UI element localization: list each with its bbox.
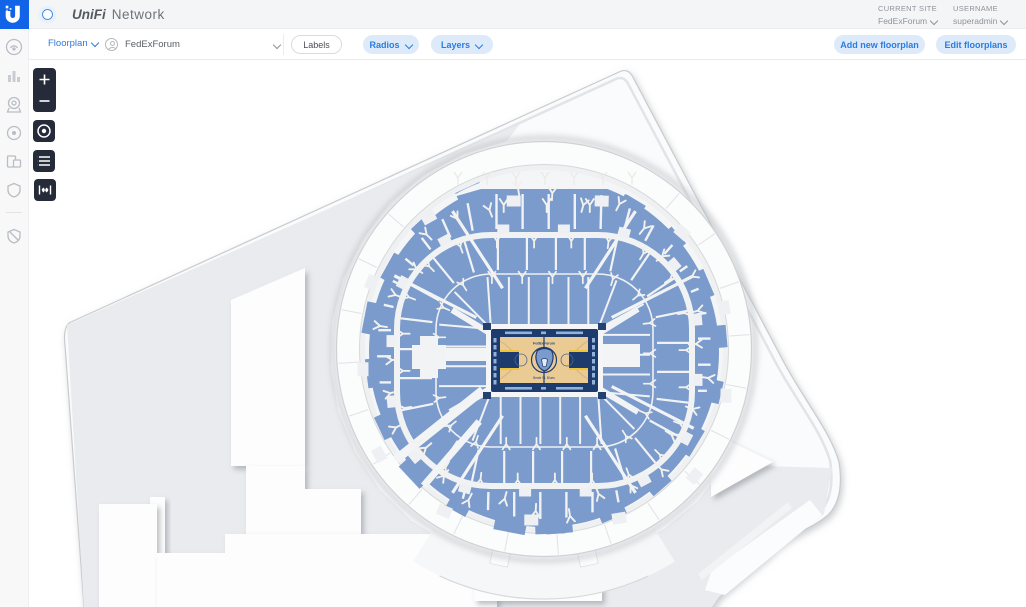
svg-text:Beale St. Blues: Beale St. Blues [533, 376, 555, 380]
svg-text:FedExForum: FedExForum [533, 342, 555, 346]
